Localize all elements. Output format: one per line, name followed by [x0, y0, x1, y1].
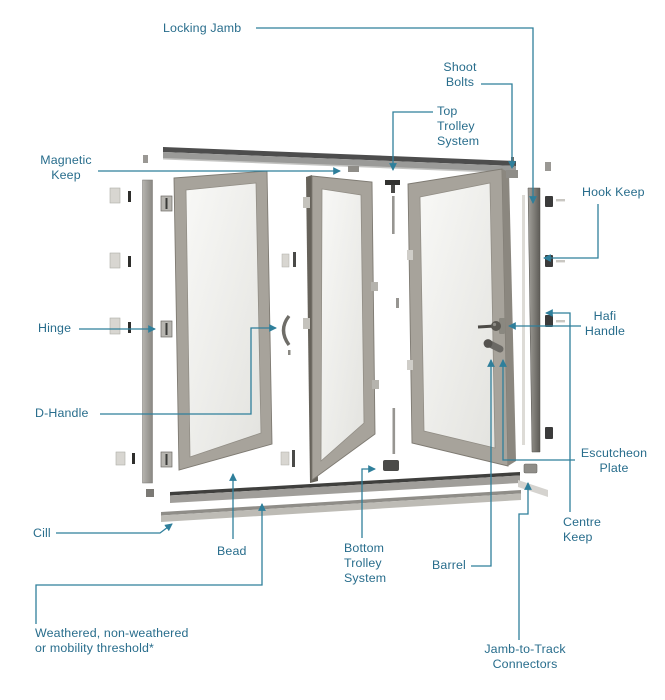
bottom-trolley-part: [383, 460, 399, 471]
label-bead: Bead: [217, 544, 247, 559]
label-escutcheon-plate: Escutcheon Plate: [570, 446, 658, 476]
threshold-callout: [36, 504, 262, 624]
label-magnetic-keep: Magnetic Keep: [26, 153, 106, 183]
label-top-trolley-system: Top Trolley System: [437, 104, 479, 149]
hinge-parts: [161, 196, 172, 467]
label-locking-jamb: Locking Jamb: [163, 21, 241, 36]
label-threshold: Weathered, non-weathered or mobility thr…: [35, 626, 189, 656]
left-jamb-bar: [143, 180, 155, 497]
label-hook-keep: Hook Keep: [582, 185, 645, 200]
shoot-bolt-part: [506, 170, 518, 178]
diagram-canvas: Locking Jamb Shoot Bolts Top Trolley Sys…: [0, 0, 665, 700]
track-end-piece: [518, 480, 548, 497]
top-trolley-part: [385, 180, 400, 185]
keep-blocks-right: [545, 196, 565, 439]
shoot-bolts-callout: [481, 84, 512, 168]
door-panel-middle: [303, 175, 379, 483]
hook-keep-callout: [544, 204, 598, 258]
jamb-to-track-callout: [519, 483, 528, 640]
label-cill: Cill: [33, 526, 51, 541]
trolley-nub: [348, 166, 359, 172]
screw-icon: [143, 155, 148, 163]
door-panel-left: [174, 171, 291, 470]
d-handle-part: [284, 316, 290, 345]
centre-keep-callout: [546, 313, 570, 512]
top-track: [163, 147, 516, 174]
bifold-door-exploded-illustration: [0, 0, 665, 700]
label-centre-keep: Centre Keep: [563, 515, 601, 545]
label-barrel: Barrel: [432, 558, 466, 573]
door-panel-right: [407, 157, 518, 466]
label-hinge: Hinge: [38, 321, 71, 336]
jamb-to-track-connector-part: [524, 464, 537, 473]
label-hafi-handle: Hafi Handle: [569, 309, 641, 339]
label-bottom-trolley-system: Bottom Trolley System: [344, 541, 386, 586]
label-d-handle: D-Handle: [35, 406, 89, 421]
label-shoot-bolts: Shoot Bolts: [425, 60, 495, 90]
label-jamb-to-track-connectors: Jamb-to-Track Connectors: [479, 642, 571, 672]
cill-callout: [56, 524, 172, 533]
trolley-and-shoot-bolt-parts: [383, 180, 400, 471]
